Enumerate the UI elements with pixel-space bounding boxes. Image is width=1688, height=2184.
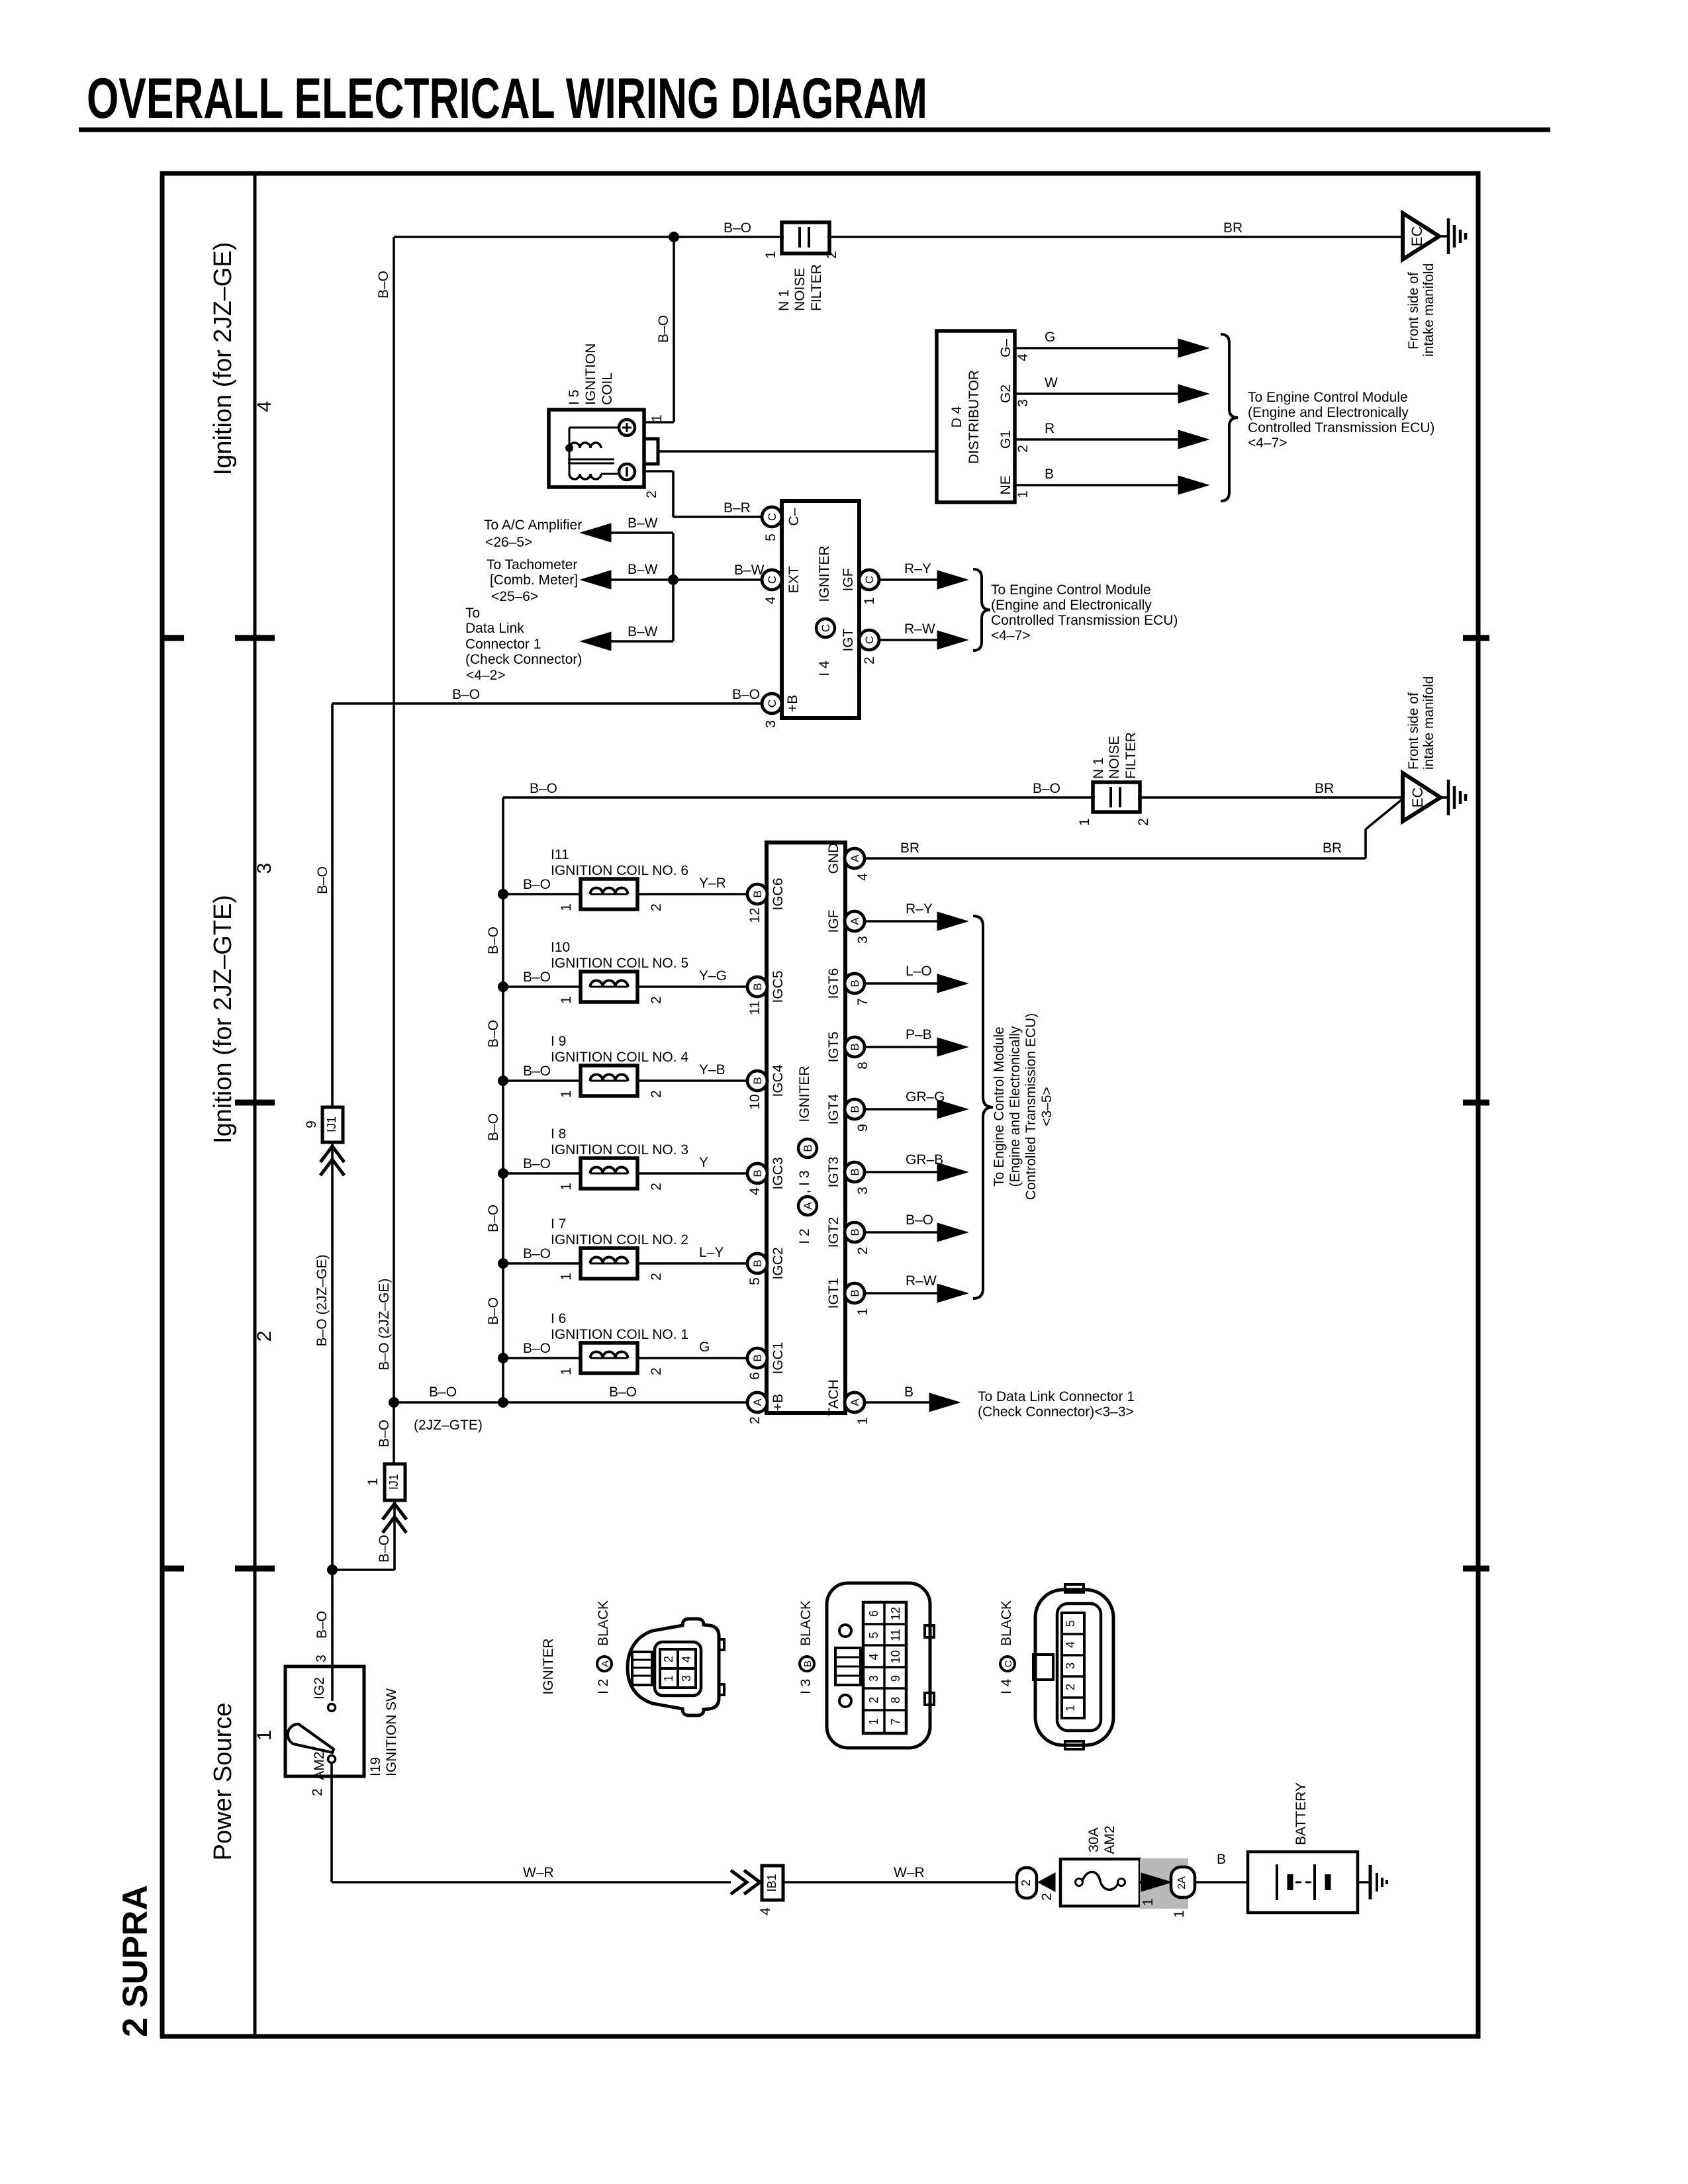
svg-text:I 6: I 6 (551, 1311, 566, 1326)
svg-text:L–Y: L–Y (699, 1245, 724, 1260)
svg-text:BR: BR (1323, 841, 1342, 856)
svg-text:G2: G2 (998, 385, 1013, 403)
svg-text:2 SUPRA: 2 SUPRA (116, 1885, 155, 2037)
svg-text:AM2: AM2 (312, 1751, 327, 1780)
svg-text:R: R (1045, 421, 1055, 436)
svg-text:2A: 2A (1176, 1876, 1188, 1889)
svg-text:1: 1 (1064, 1705, 1077, 1711)
svg-text:IGNITION COIL NO. 3: IGNITION COIL NO. 3 (551, 1142, 688, 1158)
svg-text:EXT: EXT (786, 566, 802, 593)
svg-text:B: B (849, 1289, 861, 1297)
svg-text:1: 1 (855, 1308, 870, 1316)
svg-text:COIL: COIL (600, 373, 615, 405)
svg-text:Power Source: Power Source (209, 1703, 237, 1861)
svg-text:IGF: IGF (841, 569, 856, 592)
svg-text:4: 4 (867, 1653, 880, 1660)
svg-text:IGT1: IGT1 (826, 1278, 841, 1309)
svg-text:2: 2 (1064, 1684, 1077, 1690)
svg-text:3: 3 (855, 936, 870, 944)
svg-text:IGNITION: IGNITION (583, 343, 598, 405)
svg-text:I 5: I 5 (567, 390, 582, 405)
svg-text:IJ1: IJ1 (325, 1116, 338, 1132)
svg-text:5: 5 (763, 533, 778, 541)
svg-text:<4–2>: <4–2> (466, 668, 506, 683)
svg-text:B–O (2JZ–GE): B–O (2JZ–GE) (377, 1279, 392, 1371)
svg-text:I 3: I 3 (798, 1679, 814, 1694)
svg-text:BR: BR (1315, 781, 1334, 796)
svg-text:12: 12 (889, 1607, 902, 1620)
svg-text:C: C (1003, 1660, 1014, 1667)
svg-text:GR–G: GR–G (906, 1089, 945, 1105)
svg-text:IG2: IG2 (312, 1677, 327, 1700)
svg-text:<26–5>: <26–5> (485, 535, 532, 550)
svg-text:C: C (820, 624, 832, 632)
svg-text:, I 3: , I 3 (797, 1170, 812, 1193)
svg-text:B: B (751, 1169, 764, 1177)
svg-text:(Engine and Electronically: (Engine and Electronically (1008, 1026, 1023, 1187)
svg-text:4: 4 (855, 873, 870, 881)
svg-text:1: 1 (855, 1417, 870, 1425)
svg-text:I 9: I 9 (551, 1034, 566, 1049)
svg-text:6: 6 (747, 1372, 763, 1380)
svg-text:2: 2 (747, 1416, 763, 1424)
svg-text:I11: I11 (551, 847, 569, 862)
svg-text:4: 4 (254, 401, 275, 412)
svg-text:11: 11 (889, 1629, 902, 1641)
svg-text:B–O: B–O (377, 1420, 392, 1447)
svg-text:To A/C Amplifier: To A/C Amplifier (484, 518, 582, 533)
svg-text:B–O: B–O (732, 687, 760, 702)
svg-text:10: 10 (747, 1094, 763, 1109)
svg-text:2: 2 (662, 1656, 675, 1662)
svg-text:3: 3 (763, 720, 778, 728)
svg-text:C: C (863, 576, 876, 584)
svg-text:I 2: I 2 (797, 1228, 812, 1244)
svg-text:W: W (1045, 375, 1058, 390)
svg-text:B–W: B–W (628, 516, 658, 531)
svg-text:I 4: I 4 (817, 660, 832, 676)
svg-text:IGT5: IGT5 (826, 1032, 841, 1063)
svg-text:B: B (751, 983, 764, 990)
svg-text:1: 1 (559, 903, 574, 911)
svg-text:IGT6: IGT6 (826, 968, 841, 999)
svg-text:R–Y: R–Y (904, 561, 931, 576)
svg-text:B: B (1045, 467, 1054, 482)
svg-text:9: 9 (889, 1675, 902, 1682)
svg-text:B–O: B–O (486, 1297, 501, 1325)
svg-text:B–O: B–O (486, 1205, 501, 1232)
svg-text:1: 1 (559, 996, 574, 1004)
svg-text:NOISE: NOISE (1107, 736, 1122, 779)
svg-text:Y–G: Y–G (699, 968, 727, 983)
svg-text:B–W: B–W (734, 563, 765, 578)
svg-text:2: 2 (649, 996, 664, 1004)
svg-text:3: 3 (855, 1187, 870, 1195)
svg-text:12: 12 (747, 907, 763, 923)
svg-text:Controlled Transmission ECU): Controlled Transmission ECU) (1248, 420, 1434, 435)
svg-text:B: B (751, 1259, 764, 1267)
svg-text:4: 4 (680, 1656, 693, 1662)
svg-text:Connector 1: Connector 1 (465, 637, 541, 652)
svg-text:IGC1: IGC1 (771, 1342, 786, 1374)
svg-text:B: B (849, 1168, 861, 1175)
svg-text:D 4: D 4 (949, 406, 964, 428)
svg-text:B–O: B–O (429, 1385, 457, 1400)
svg-text:GR–B: GR–B (906, 1152, 943, 1167)
svg-text:FILTER: FILTER (1123, 732, 1139, 779)
svg-text:B: B (849, 979, 861, 987)
svg-text:1: 1 (662, 1675, 675, 1682)
svg-text:IGC4: IGC4 (771, 1064, 786, 1097)
svg-text:Y–B: Y–B (699, 1062, 726, 1077)
svg-text:IGT3: IGT3 (826, 1157, 841, 1188)
svg-text:IGT4: IGT4 (826, 1093, 841, 1124)
svg-text:To Engine Control Module: To Engine Control Module (992, 1026, 1007, 1187)
svg-text:intake manifold: intake manifold (1421, 263, 1436, 357)
svg-text:A: A (802, 1202, 814, 1210)
svg-text:1: 1 (559, 1090, 574, 1098)
svg-text:A: A (849, 917, 861, 925)
svg-text:B–O: B–O (523, 877, 551, 892)
svg-text:2: 2 (824, 251, 839, 259)
svg-text:EC: EC (1409, 226, 1425, 247)
svg-text:B–O: B–O (315, 866, 330, 894)
svg-text:C: C (863, 636, 876, 644)
svg-text:IGC6: IGC6 (771, 878, 786, 910)
svg-text:Data Link: Data Link (465, 621, 524, 636)
svg-text:B–O: B–O (523, 1064, 551, 1079)
svg-text:2: 2 (649, 1273, 664, 1281)
svg-text:To Data Link Connector 1: To Data Link Connector 1 (978, 1389, 1135, 1404)
svg-text:2: 2 (649, 1090, 664, 1098)
svg-text:A: A (600, 1661, 611, 1667)
svg-text:I 4: I 4 (999, 1678, 1014, 1694)
svg-text:B–W: B–W (628, 562, 658, 577)
svg-text:C–: C– (786, 508, 802, 525)
svg-text:A: A (849, 854, 861, 862)
svg-text:AM2: AM2 (1102, 1825, 1117, 1854)
svg-text:[Comb. Meter]: [Comb. Meter] (490, 572, 578, 588)
svg-text:I 8: I 8 (551, 1126, 566, 1142)
svg-text:B–O: B–O (523, 970, 551, 985)
svg-text:intake manifold: intake manifold (1421, 676, 1436, 770)
svg-text:Front side of: Front side of (1406, 692, 1421, 770)
svg-text:Ignition (for 2JZ–GTE): Ignition (for 2JZ–GTE) (209, 895, 237, 1144)
svg-text:EC: EC (1409, 788, 1426, 808)
svg-text:4: 4 (1015, 353, 1031, 361)
svg-text:Controlled Transmission ECU): Controlled Transmission ECU) (991, 613, 1178, 628)
svg-text:3: 3 (867, 1675, 880, 1682)
svg-text:L–O: L–O (906, 964, 932, 979)
svg-text:30A: 30A (1086, 1827, 1102, 1852)
svg-text:R–Y: R–Y (906, 901, 933, 917)
svg-text:1: 1 (1015, 490, 1031, 498)
svg-text:OVERALL ELECTRICAL WIRING DIAG: OVERALL ELECTRICAL WIRING DIAGRAM (87, 67, 927, 130)
svg-text:(Check Connector): (Check Connector) (465, 652, 582, 667)
svg-text:B: B (751, 1354, 764, 1361)
svg-text:(2JZ–GTE): (2JZ–GTE) (414, 1418, 483, 1433)
svg-text:9: 9 (304, 1120, 319, 1128)
svg-text:Y: Y (699, 1155, 708, 1170)
svg-text:2: 2 (867, 1697, 880, 1704)
svg-text:To Engine Control Module: To Engine Control Module (991, 582, 1151, 598)
svg-text:1: 1 (365, 1478, 381, 1486)
svg-text:IJ1: IJ1 (387, 1474, 400, 1490)
svg-text:3: 3 (680, 1675, 693, 1682)
svg-text:IB1: IB1 (765, 1874, 778, 1891)
svg-text:2: 2 (1019, 1880, 1033, 1886)
svg-text:Controlled Transmission ECU): Controlled Transmission ECU) (1023, 1013, 1039, 1200)
svg-text:2: 2 (649, 1183, 664, 1191)
svg-text:BATTERY: BATTERY (1293, 1782, 1309, 1845)
svg-text:C: C (766, 513, 778, 521)
svg-text:NOISE: NOISE (792, 268, 808, 311)
svg-text:Front side of: Front side of (1406, 272, 1421, 349)
svg-text:3: 3 (314, 1655, 329, 1662)
svg-text:1: 1 (254, 1730, 275, 1741)
svg-text:<3–5>: <3–5> (1039, 1087, 1055, 1126)
svg-text:To: To (465, 606, 480, 621)
svg-text:10: 10 (889, 1650, 902, 1663)
svg-text:8: 8 (889, 1697, 902, 1704)
svg-text:4: 4 (747, 1187, 763, 1195)
svg-text:W–R: W–R (523, 1865, 554, 1880)
svg-text:IGNITION COIL NO. 4: IGNITION COIL NO. 4 (551, 1050, 688, 1065)
svg-text:3: 3 (1064, 1662, 1077, 1669)
svg-text:B: B (904, 1385, 914, 1400)
svg-text:IGNITION COIL NO. 2: IGNITION COIL NO. 2 (551, 1232, 688, 1248)
svg-text:3: 3 (254, 863, 275, 874)
svg-text:IGNITION SW: IGNITION SW (384, 1688, 399, 1776)
svg-text:B–O: B–O (906, 1212, 933, 1228)
svg-text:8: 8 (855, 1062, 870, 1069)
svg-text:2: 2 (1039, 1893, 1055, 1901)
svg-text:1: 1 (559, 1273, 574, 1281)
svg-text:C: C (766, 576, 778, 584)
svg-text:B: B (802, 1144, 814, 1152)
svg-text:1: 1 (559, 1367, 574, 1375)
svg-text:To Tachometer: To Tachometer (487, 557, 577, 572)
svg-text:1: 1 (649, 414, 665, 422)
svg-text:IGT2: IGT2 (826, 1217, 841, 1248)
svg-text:NE: NE (998, 475, 1013, 494)
svg-text:IGT: IGT (841, 628, 856, 651)
svg-text:G: G (1045, 330, 1055, 345)
svg-text:B–O: B–O (486, 1020, 501, 1048)
svg-text:B–R: B–R (724, 500, 751, 516)
svg-text:A: A (751, 1398, 764, 1406)
svg-text:5: 5 (1064, 1620, 1077, 1627)
svg-text:(Engine and Electronically: (Engine and Electronically (991, 598, 1152, 613)
svg-text:B–O: B–O (486, 927, 501, 954)
svg-text:P–B: P–B (906, 1027, 932, 1042)
svg-text:R–W: R–W (906, 1273, 937, 1289)
svg-text:1: 1 (1172, 1910, 1187, 1918)
svg-text:IGC5: IGC5 (771, 970, 786, 1003)
svg-text:IGNITER: IGNITER (541, 1638, 556, 1694)
svg-text:2: 2 (649, 1367, 664, 1375)
svg-text:1: 1 (1077, 818, 1092, 826)
svg-text:1: 1 (862, 597, 877, 605)
svg-text:IGNITION COIL NO. 1: IGNITION COIL NO. 1 (551, 1327, 688, 1342)
svg-text:IGF: IGF (826, 910, 841, 933)
svg-text:IGC2: IGC2 (771, 1247, 786, 1279)
svg-text:2: 2 (862, 657, 877, 664)
svg-text:TACH: TACH (826, 1379, 841, 1416)
svg-text:B–O: B–O (523, 1341, 551, 1356)
svg-text:2: 2 (855, 1247, 870, 1255)
svg-text:B–O: B–O (452, 687, 480, 702)
svg-text:G1: G1 (998, 430, 1013, 449)
svg-text:C: C (766, 700, 778, 707)
svg-text:Ignition (for 2JZ–GE): Ignition (for 2JZ–GE) (209, 242, 237, 476)
svg-text:B: B (802, 1661, 814, 1667)
svg-text:R–W: R–W (904, 621, 935, 637)
svg-text:(Engine and Electronically: (Engine and Electronically (1248, 405, 1409, 420)
svg-text:IGNITER: IGNITER (797, 1066, 812, 1122)
svg-text:11: 11 (747, 1001, 763, 1015)
svg-text:B–O (2JZ–GE): B–O (2JZ–GE) (314, 1255, 330, 1347)
svg-text:<4–7>: <4–7> (991, 628, 1031, 643)
svg-text:7: 7 (889, 1718, 902, 1725)
svg-text:4: 4 (758, 1907, 773, 1915)
svg-text:N 1: N 1 (1091, 757, 1106, 779)
svg-text:7: 7 (855, 998, 870, 1006)
svg-text:B–O: B–O (376, 271, 391, 298)
svg-text:B–O: B–O (314, 1611, 330, 1639)
svg-text:2: 2 (649, 903, 664, 911)
svg-text:G–: G– (998, 339, 1013, 357)
svg-text:GND: GND (826, 843, 841, 874)
svg-text:4: 4 (1064, 1641, 1077, 1648)
svg-text:B: B (849, 1043, 861, 1050)
svg-text:G: G (699, 1340, 710, 1355)
svg-text:IGNITION COIL NO. 5: IGNITION COIL NO. 5 (551, 956, 688, 971)
svg-text:B: B (751, 1077, 764, 1084)
svg-text:5: 5 (867, 1632, 880, 1639)
svg-text:DISTRIBUTOR: DISTRIBUTOR (966, 370, 982, 464)
svg-text:B: B (1217, 1852, 1226, 1867)
svg-text:B–O: B–O (656, 315, 671, 343)
svg-text:B–O: B–O (523, 1246, 551, 1261)
svg-text:BLACK: BLACK (999, 1600, 1014, 1646)
svg-text:2: 2 (1015, 445, 1031, 453)
svg-text:I 7: I 7 (551, 1216, 566, 1232)
svg-text:2: 2 (310, 1788, 325, 1796)
svg-text:IGNITER: IGNITER (817, 545, 832, 602)
svg-text:3: 3 (1015, 399, 1031, 407)
svg-text:To Engine Control Module: To Engine Control Module (1248, 390, 1408, 405)
svg-text:I19: I19 (368, 1757, 383, 1776)
svg-text:<25–6>: <25–6> (491, 589, 538, 604)
svg-text:FILTER: FILTER (809, 264, 824, 311)
svg-text:+B: +B (771, 1394, 786, 1411)
svg-text:2: 2 (254, 1331, 275, 1342)
svg-text:1: 1 (1141, 1898, 1156, 1906)
svg-text:B–O: B–O (724, 220, 751, 236)
svg-text:1: 1 (763, 251, 778, 259)
svg-text:B–O: B–O (377, 1535, 392, 1563)
svg-text:A: A (849, 1398, 861, 1406)
svg-text:B–O: B–O (1033, 781, 1060, 796)
svg-text:IGC3: IGC3 (771, 1157, 786, 1189)
svg-text:+B: +B (785, 695, 800, 712)
svg-text:N 1: N 1 (776, 289, 792, 311)
svg-text:B: B (849, 1228, 861, 1236)
svg-text:B–W: B–W (628, 624, 658, 639)
svg-text:B–O: B–O (523, 1156, 551, 1171)
svg-text:9: 9 (855, 1124, 870, 1132)
svg-text:1: 1 (867, 1718, 880, 1725)
svg-text:B: B (751, 890, 764, 897)
svg-text:BLACK: BLACK (596, 1600, 611, 1646)
svg-text:B–O: B–O (609, 1385, 637, 1400)
svg-text:B–O: B–O (486, 1113, 501, 1141)
svg-text:BR: BR (1223, 220, 1243, 236)
svg-text:IGNITION COIL NO. 6: IGNITION COIL NO. 6 (551, 863, 688, 878)
svg-text:Y–R: Y–R (699, 876, 726, 891)
svg-text:B: B (849, 1105, 861, 1113)
svg-text:I 2: I 2 (596, 1679, 611, 1694)
svg-text:BLACK: BLACK (798, 1600, 814, 1646)
svg-text:<4–7>: <4–7> (1248, 435, 1288, 451)
svg-text:(Check Connector)<3–3>: (Check Connector)<3–3> (978, 1404, 1134, 1420)
svg-text:I10: I10 (551, 940, 570, 955)
svg-text:BR: BR (900, 841, 919, 856)
svg-text:W–R: W–R (894, 1865, 925, 1880)
svg-text:5: 5 (747, 1277, 763, 1285)
svg-text:1: 1 (559, 1183, 574, 1191)
svg-text:2: 2 (644, 490, 659, 498)
svg-text:2: 2 (1136, 818, 1151, 826)
svg-text:4: 4 (763, 596, 778, 604)
svg-text:6: 6 (867, 1610, 880, 1617)
svg-text:B–O: B–O (530, 781, 557, 796)
